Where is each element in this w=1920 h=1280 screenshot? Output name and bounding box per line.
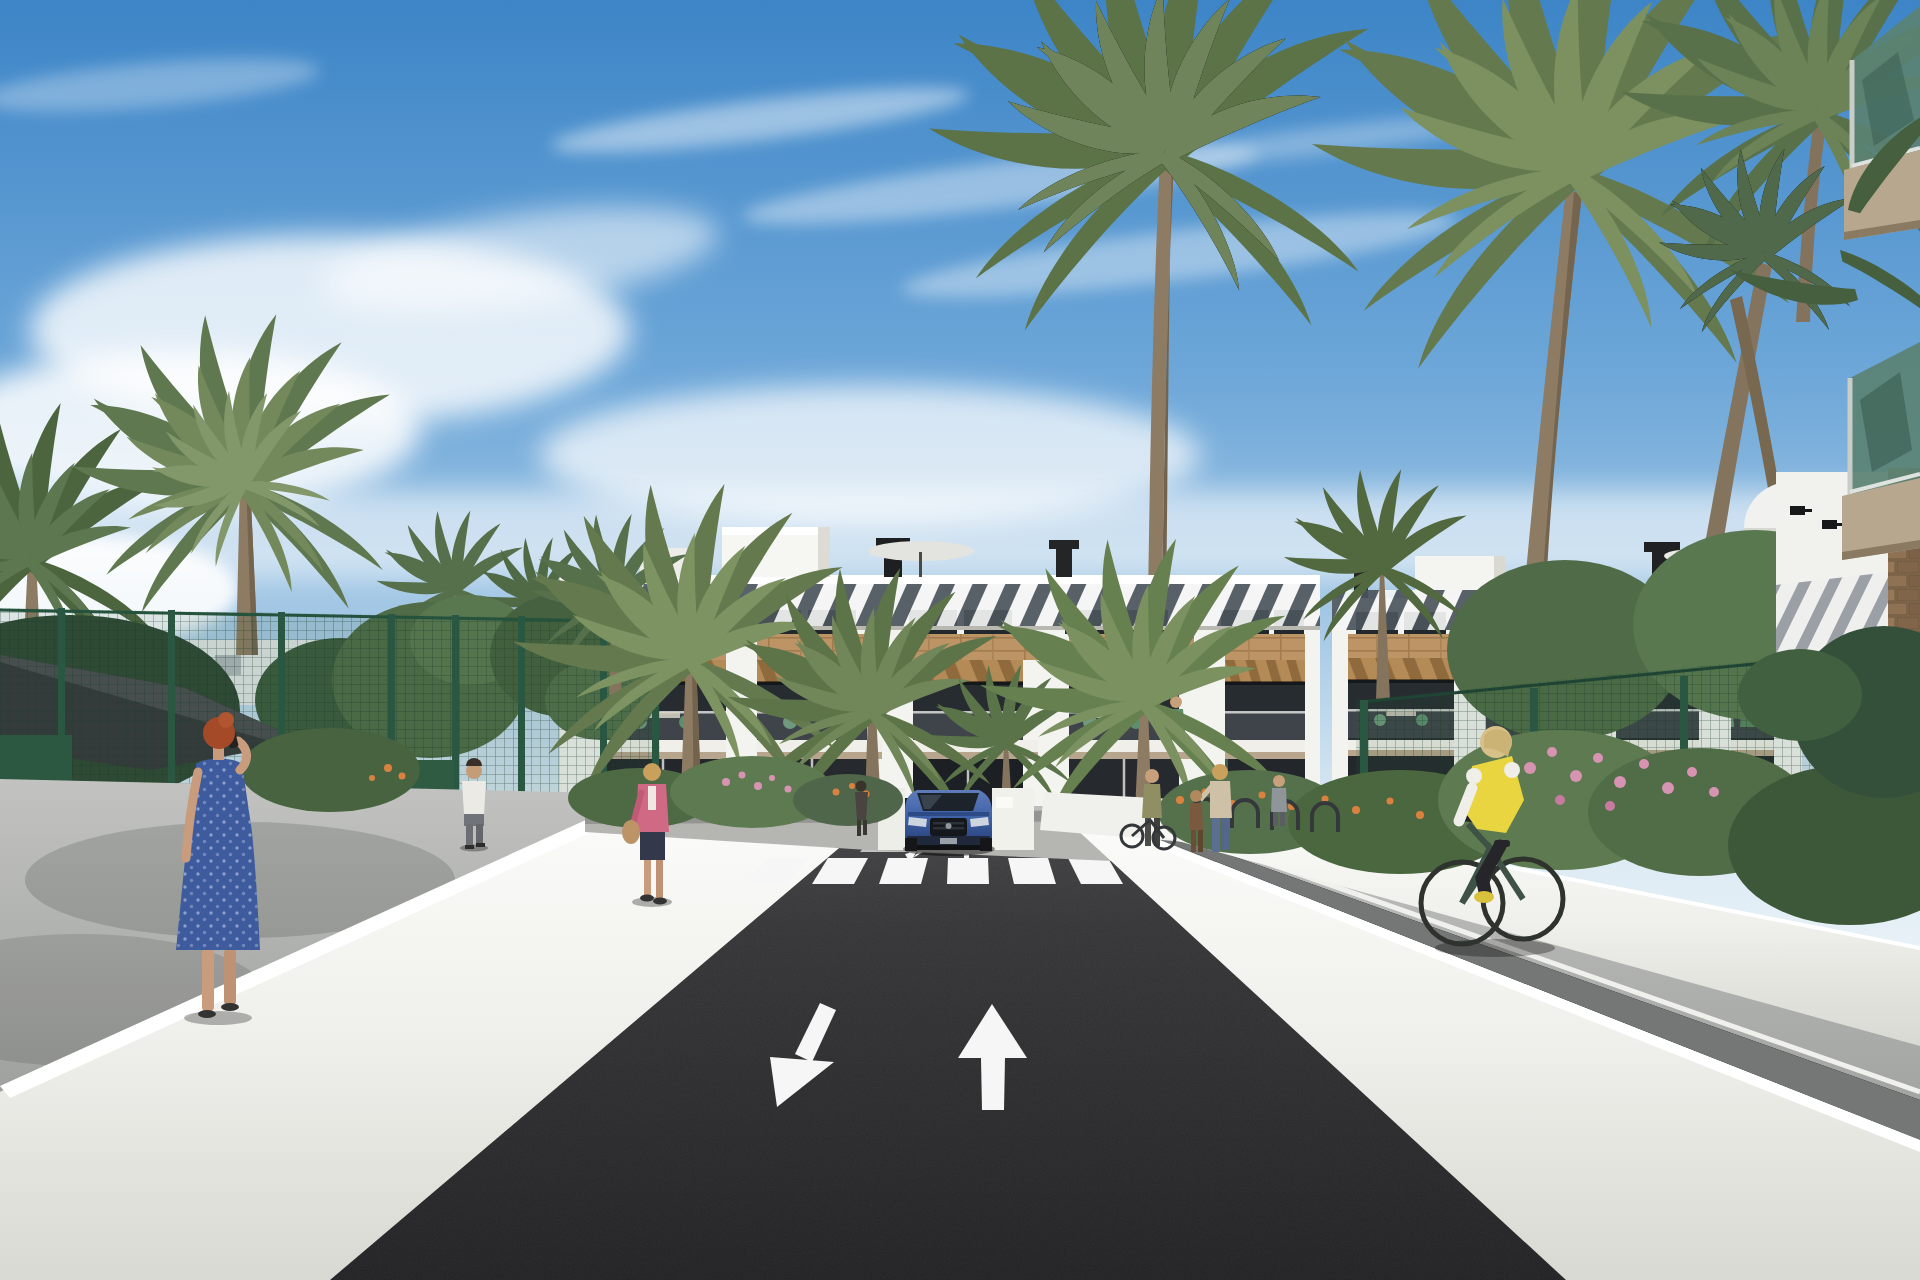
- scene-render: [0, 0, 1920, 1280]
- render-canvas: [0, 0, 1920, 1280]
- crosswalk-stripe: [1008, 858, 1056, 884]
- foreground-bush: [1738, 649, 1862, 741]
- crosswalk-stripe: [947, 858, 989, 884]
- car-suv: [903, 790, 995, 856]
